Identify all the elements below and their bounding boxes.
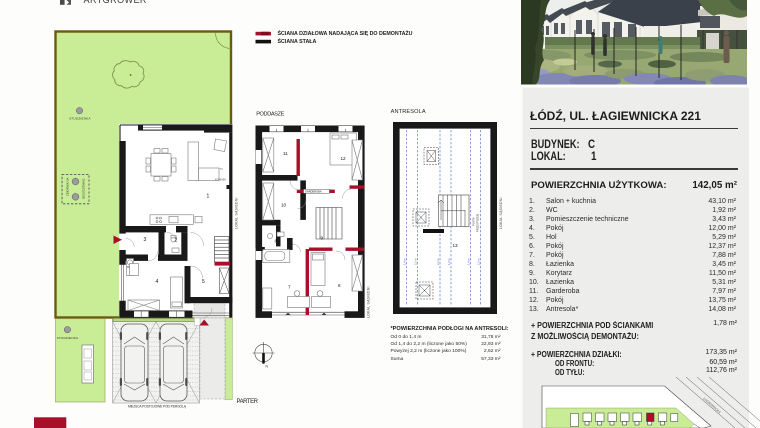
svg-text:2: 2 [175, 238, 178, 244]
svg-text:STUDZIENKA: STUDZIENKA [57, 336, 79, 340]
svg-text:1,4 m: 1,4 m [447, 259, 451, 266]
svg-text:12: 12 [341, 156, 347, 161]
svg-text:13: 13 [453, 243, 459, 248]
svg-text:1,4 m: 1,4 m [403, 259, 407, 266]
svg-text:PODDASZE: PODDASZE [256, 111, 284, 117]
svg-text:9: 9 [321, 236, 324, 241]
svg-text:6: 6 [338, 283, 341, 288]
svg-text:TV: TV [220, 168, 223, 171]
svg-text:LOKAL SĄSIEDNI: LOKAL SĄSIEDNI [235, 197, 239, 229]
svg-text:5: 5 [202, 279, 205, 285]
svg-text:KOMINEK: KOMINEK [215, 178, 226, 181]
svg-text:PARTER: PARTER [237, 399, 259, 405]
svg-text:7: 7 [288, 285, 291, 290]
svg-text:LOKAL SĄSIEDNI: LOKAL SĄSIEDNI [499, 197, 503, 229]
svg-text:8: 8 [275, 239, 278, 244]
svg-text:STUDZIENKA: STUDZIENKA [69, 117, 91, 121]
svg-text:10: 10 [281, 203, 287, 208]
svg-text:GARDEROBA: GARDEROBA [305, 190, 322, 194]
svg-text:1,4 m: 1,4 m [467, 259, 471, 266]
svg-text:3: 3 [144, 237, 147, 243]
svg-text:2,2 m: 2,2 m [477, 259, 481, 266]
svg-text:1: 1 [207, 194, 210, 200]
svg-text:ZBIORNIK NA: ZBIORNIK NA [66, 177, 70, 196]
svg-text:2,2 m: 2,2 m [414, 259, 418, 266]
svg-text:11: 11 [283, 151, 288, 156]
svg-text:PRZESTRZEŃ: PRZESTRZEŃ [476, 214, 480, 232]
svg-text:MIEJSCA POSTOJOWE POD PERGOLĄ: MIEJSCA POSTOJOWE POD PERGOLĄ [128, 404, 187, 408]
svg-text:2,2 m: 2,2 m [436, 259, 440, 266]
svg-text:ANTRESOLA: ANTRESOLA [391, 109, 426, 115]
svg-text:4: 4 [156, 279, 159, 285]
svg-text:DESZCZÓWKĘ: DESZCZÓWKĘ [81, 179, 86, 199]
svg-text:LOKAL SĄSIEDNI: LOKAL SĄSIEDNI [367, 286, 371, 318]
svg-text:N: N [266, 365, 269, 369]
svg-text:PUSTA: PUSTA [472, 217, 476, 226]
